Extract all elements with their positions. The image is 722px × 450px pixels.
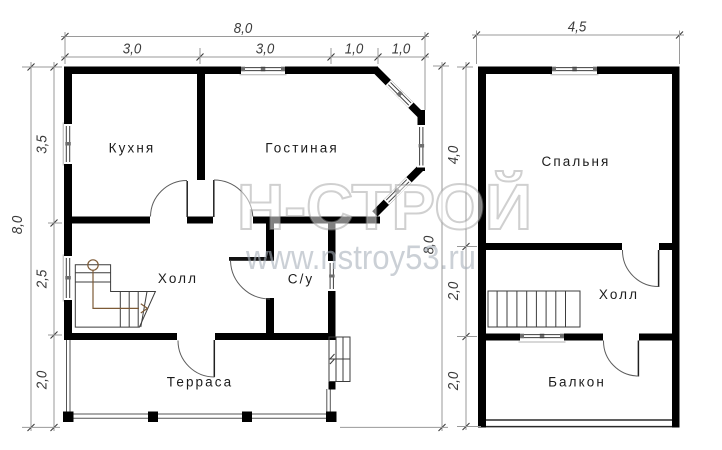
svg-text:Балкон: Балкон: [548, 375, 606, 390]
svg-text:Холл: Холл: [158, 271, 198, 286]
svg-text:2,0: 2,0: [446, 372, 462, 391]
svg-text:4,5: 4,5: [568, 20, 587, 36]
svg-text:Холл: Холл: [599, 287, 639, 302]
svg-text:1,0: 1,0: [345, 42, 364, 58]
svg-text:8,0: 8,0: [234, 21, 253, 37]
svg-text:3,5: 3,5: [35, 134, 51, 153]
svg-text:2,0: 2,0: [35, 371, 51, 390]
svg-text:www.nstroy53.ru: www.nstroy53.ru: [245, 239, 476, 277]
svg-text:Н-СТРОЙ: Н-СТРОЙ: [237, 170, 532, 243]
svg-text:8,0: 8,0: [10, 216, 26, 235]
svg-text:2,5: 2,5: [35, 269, 51, 289]
svg-text:Кухня: Кухня: [109, 141, 156, 156]
svg-text:4,0: 4,0: [446, 146, 462, 165]
svg-text:Спальня: Спальня: [542, 154, 611, 169]
svg-text:3,0: 3,0: [256, 42, 275, 58]
svg-text:Гостиная: Гостиная: [265, 141, 338, 156]
svg-text:Терраса: Терраса: [167, 375, 233, 390]
svg-text:1,0: 1,0: [392, 42, 411, 58]
svg-text:2,0: 2,0: [446, 282, 462, 301]
svg-text:3,0: 3,0: [123, 42, 142, 58]
